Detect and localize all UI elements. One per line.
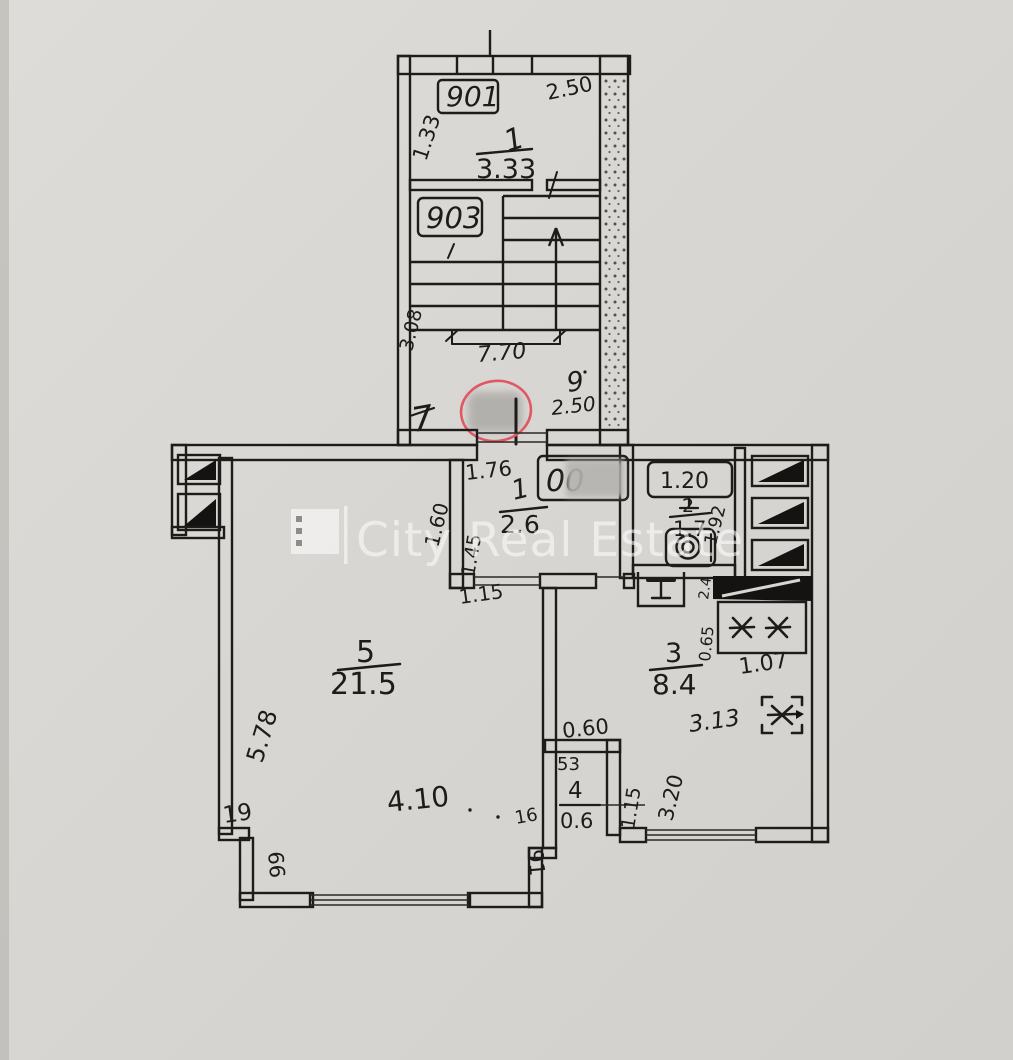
tub-dim-1-20: 1.20 [660, 469, 709, 494]
dim-2-50-landing: 2.50 [550, 391, 597, 420]
dim-7-70: 7.70 [476, 339, 527, 368]
label-91: 91 [523, 848, 549, 877]
dim-4-10: 4.10 [385, 780, 450, 819]
living-room-area: 21.5 [330, 667, 397, 702]
unit-901-label: 901 [438, 80, 499, 113]
floor-plan-scan: 901 1.33 2.50 1 3.33 903 [0, 0, 1013, 1060]
kitchen-room-area: 8.4 [652, 668, 697, 701]
window [310, 893, 470, 907]
label-19: 19 [221, 799, 254, 829]
hatched-wall [603, 76, 626, 428]
label-53: 53 [557, 754, 580, 775]
label-16: 16 [513, 804, 539, 829]
dim-0-60: 0.60 [561, 714, 610, 743]
dim-1-76: 1.76 [464, 456, 513, 485]
unit-901-text: 901 [446, 80, 499, 113]
closet-room-num: 4 [568, 778, 583, 804]
living-room-num: 5 [356, 635, 375, 670]
paper-edge-shadow [0, 0, 9, 1060]
closet-room-area: 0.6 [560, 809, 593, 833]
privacy-blur-patch [566, 460, 624, 497]
hatched-wedge [713, 576, 812, 601]
dim-2-4: 2.4 [696, 576, 715, 600]
privacy-blur-patch [468, 392, 522, 432]
watermark-text: City Real Estate [356, 513, 744, 568]
unit-903-text: 903 [426, 201, 481, 235]
watermark: City Real Estate [291, 506, 744, 568]
dim-0-65: 0.65 [695, 625, 718, 662]
kitchen-room-num: 3 [665, 638, 682, 669]
label-66: 66 [263, 850, 289, 879]
floor-plan-svg: 901 1.33 2.50 1 3.33 903 [0, 0, 1013, 1060]
unit-903-label: 903 [418, 198, 482, 236]
